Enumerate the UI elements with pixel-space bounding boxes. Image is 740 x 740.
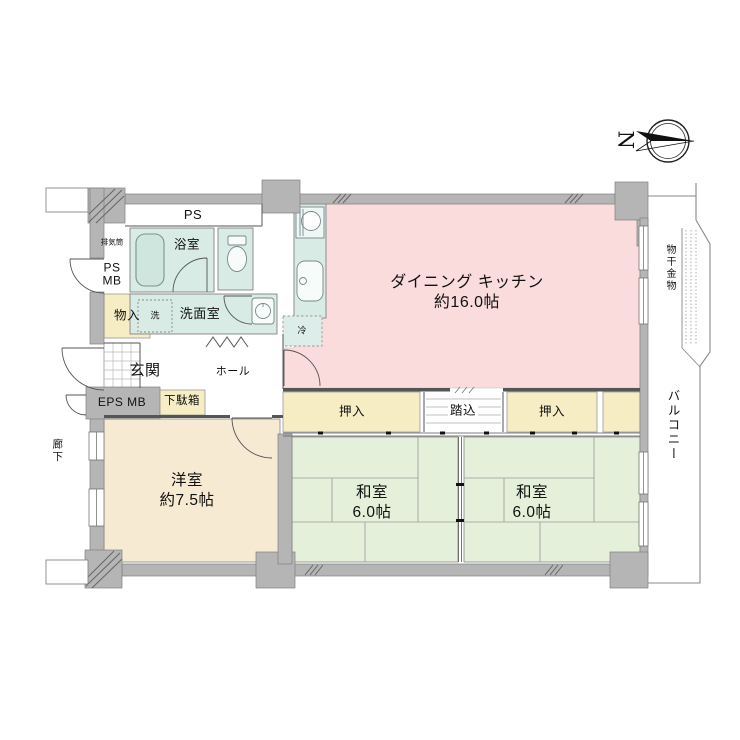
label-closet-1: 押入: [339, 405, 365, 420]
label-exhaust-duct: 排気筒: [101, 238, 124, 247]
western-room-size: 約7.5帖: [159, 491, 214, 511]
ps-mb-line2: MB: [103, 274, 122, 287]
north-arrow: [636, 120, 694, 162]
japanese-room-1-size: 6.0帖: [352, 503, 391, 523]
toilet-icon: [228, 236, 247, 272]
label-japanese-room-2: 和室 6.0帖: [512, 483, 551, 523]
label-bathroom: 浴室: [174, 238, 200, 253]
label-western-room: 洋室 約7.5帖: [159, 471, 214, 511]
label-closet-2: 押入: [539, 405, 565, 420]
dining-kitchen-name: ダイニング キッチン: [390, 273, 543, 293]
label-pipe-space: PS: [184, 207, 202, 223]
balcony-outline: [648, 183, 710, 583]
bathtub-icon: [136, 234, 164, 286]
label-japanese-room-1: 和室 6.0帖: [352, 483, 391, 523]
eps-door-arc: [66, 395, 86, 415]
label-washroom: 洗面室: [180, 306, 221, 322]
label-dining-kitchen: ダイニング キッチン 約16.0帖: [390, 273, 543, 313]
entrance-door-arc: [62, 348, 104, 390]
top-wall: [125, 194, 615, 204]
label-corridor: 廊下: [51, 439, 64, 464]
western-room-name: 洋室: [159, 471, 214, 491]
japanese-room-2-name: 和室: [512, 483, 551, 503]
corner-pillar-se: [610, 552, 648, 588]
kitchen-sink-icon: [297, 261, 323, 301]
ps-mb-door-arc: [70, 259, 104, 293]
floor-plan-drawing: [0, 0, 740, 740]
pillar-top-mid: [262, 180, 300, 213]
vanity-sink-icon: [252, 298, 274, 324]
label-laundry-hanger: 物干金物: [663, 244, 675, 292]
japanese-room-1-name: 和室: [352, 483, 391, 503]
folding-door-zigzag: [206, 337, 248, 347]
inner-wall-west-japanese: [278, 434, 292, 564]
dining-kitchen-size: 約16.0帖: [390, 293, 543, 313]
label-hall: ホール: [216, 365, 251, 378]
label-shoe-cabinet: 下駄箱: [164, 395, 200, 409]
japanese-room-2-floor: [464, 437, 640, 562]
closet-3-fill: [603, 392, 640, 432]
label-ps-mb: PS MB: [103, 261, 122, 286]
label-refrigerator: 冷: [297, 326, 306, 337]
label-balcony: バルコニー: [665, 389, 680, 462]
label-eps-mb: EPS MB: [98, 395, 146, 409]
floor-plan: PS 排気筒 PS MB 物入 浴室 洗面室 洗 冷 玄関 ホール EPS MB…: [0, 0, 740, 740]
japanese-room-2-size: 6.0帖: [512, 503, 551, 523]
label-north: N: [612, 131, 637, 150]
ps-mb-line1: PS: [103, 261, 122, 274]
laundry-hanger-lines: [686, 230, 696, 345]
corridor-openings: [46, 188, 88, 584]
label-storage-closet: 物入: [114, 309, 140, 324]
left-wall: [90, 188, 104, 258]
label-step-in: 踏込: [448, 404, 478, 419]
label-entrance: 玄関: [129, 362, 160, 380]
corner-pillar-ne: [615, 182, 648, 220]
label-washer: 洗: [150, 311, 159, 322]
